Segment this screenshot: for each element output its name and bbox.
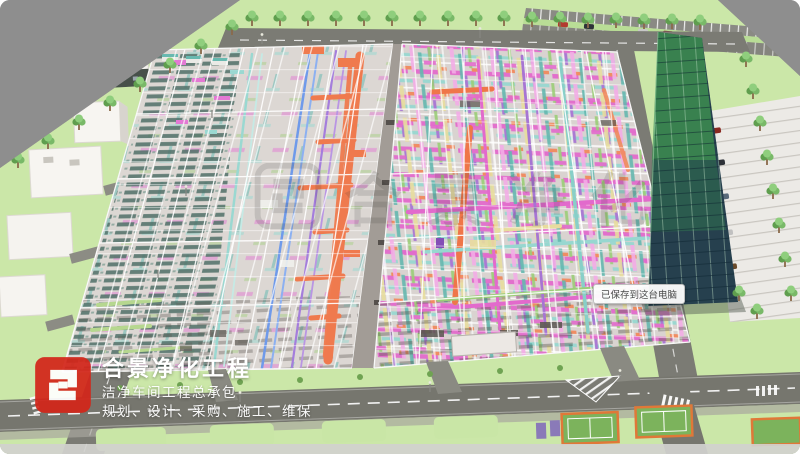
court	[752, 418, 800, 446]
company-tagline-2: 规划、设计、采购、施工、维保	[102, 403, 312, 420]
frame-bottom-band	[0, 444, 800, 454]
link-building	[451, 332, 516, 356]
saved-toast: 已保存到这台电脑	[593, 284, 685, 304]
aux-building	[7, 212, 73, 259]
aux-building	[29, 146, 103, 198]
brand-block: 合景净化工程 洁净车间工程总承包 规划、设计、采购、施工、维保	[34, 356, 312, 420]
company-tagline-1: 洁净车间工程总承包	[102, 384, 312, 401]
company-logo-icon	[34, 356, 92, 414]
brand-text: 合景净化工程 洁净车间工程总承包 规划、设计、采购、施工、维保	[102, 356, 312, 420]
company-name: 合景净化工程	[102, 356, 312, 382]
bim-screenshot: 合景净化 合景净化工程 洁净车间工程总承包 规划、设计、采购、施工、维保 已保存…	[0, 0, 800, 454]
court	[562, 412, 619, 444]
court	[635, 405, 692, 437]
aux-building	[0, 275, 47, 317]
